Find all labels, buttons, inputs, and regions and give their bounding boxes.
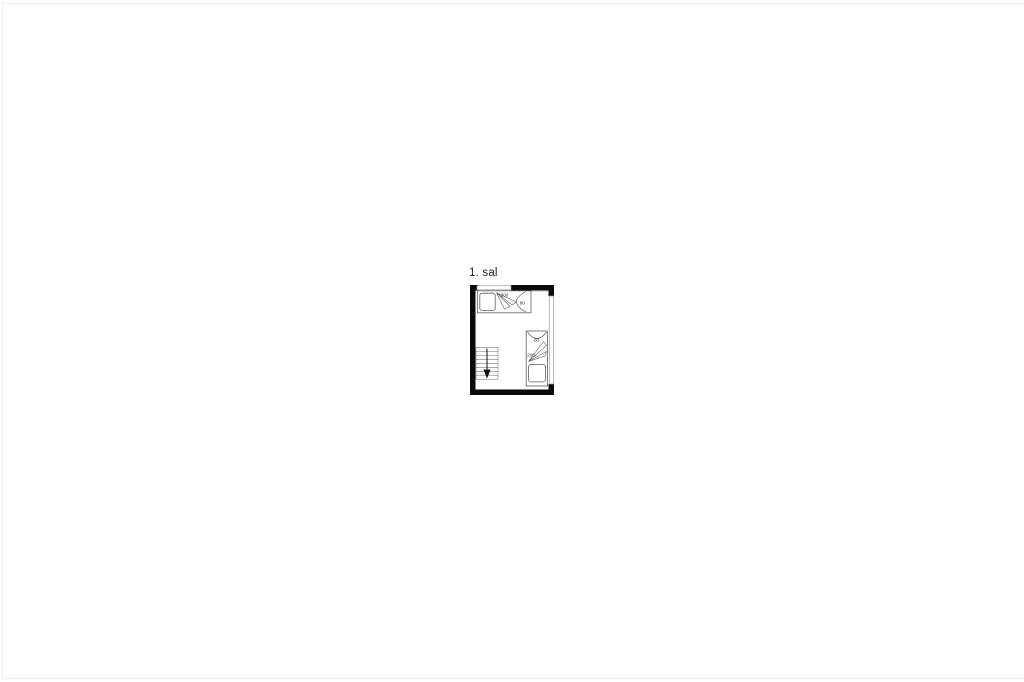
wall-bottom bbox=[470, 390, 554, 396]
bed-top-width-label: 80 bbox=[520, 300, 526, 305]
bed-top-pillow bbox=[480, 293, 495, 310]
staircase bbox=[476, 348, 498, 380]
bed-right-length-label: 200 bbox=[527, 353, 535, 358]
bed-top: 200 80 bbox=[478, 291, 532, 313]
wall-left bbox=[470, 285, 476, 395]
page-canvas: 1. sal bbox=[0, 0, 1024, 682]
wall-top bbox=[511, 285, 554, 291]
floorplan-drawing: 200 80 80 200 bbox=[466, 282, 558, 398]
window-right bbox=[549, 296, 553, 384]
bed-right-pillow bbox=[529, 365, 546, 382]
bed-right-width-label: 80 bbox=[534, 337, 540, 342]
bed-top-length-label: 200 bbox=[501, 292, 509, 297]
wall-corner-top-right bbox=[549, 285, 555, 296]
floor-label: 1. sal bbox=[469, 267, 498, 280]
bed-right: 80 200 bbox=[526, 331, 547, 386]
window-top bbox=[477, 286, 511, 290]
